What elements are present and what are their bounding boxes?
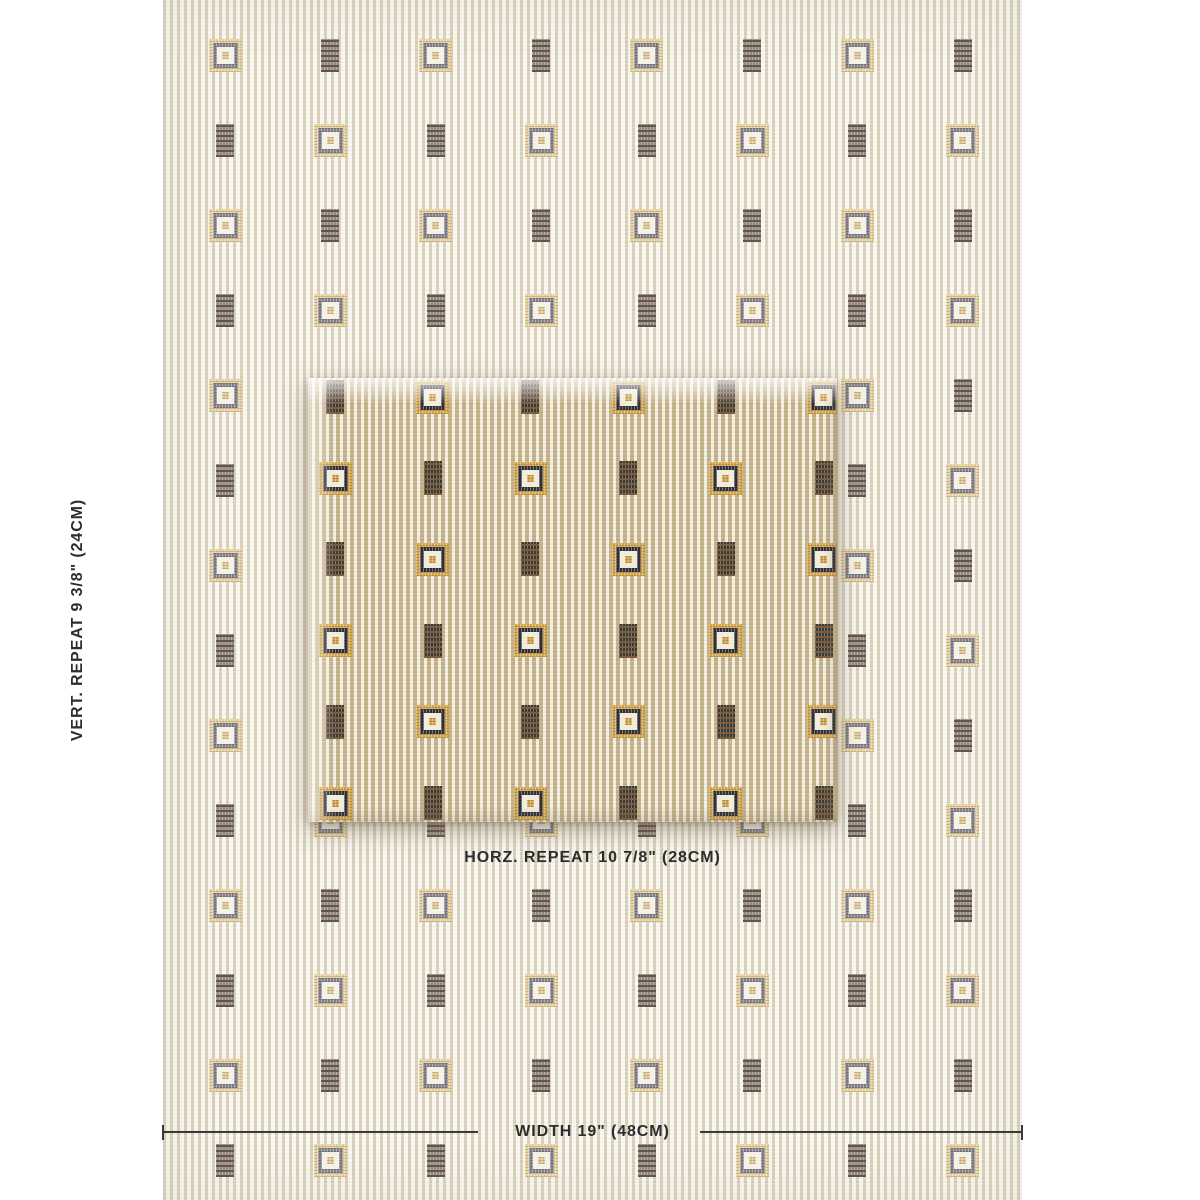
- motif-dark-ring: [323, 791, 348, 816]
- motif-inner: [427, 47, 444, 64]
- motif-center-square: [854, 222, 861, 229]
- motif-dark-ring: [616, 709, 641, 734]
- motif-center-square: [432, 902, 439, 909]
- motif-inner: [849, 727, 866, 744]
- motif-dark-ring: [616, 547, 641, 572]
- fabric-motif-dark: [717, 705, 735, 739]
- motif-dark-ring: [845, 893, 870, 918]
- motif-inner: [327, 632, 344, 649]
- motif-dark-ring: [740, 298, 765, 323]
- fabric-motif-dark: [954, 379, 972, 412]
- motif-dark-ring: [616, 385, 641, 410]
- fabric-motif-dark: [638, 124, 656, 157]
- fabric-motif-framed: [416, 381, 449, 414]
- fabric-motif-dark: [743, 39, 761, 72]
- fabric-motif-framed: [319, 462, 352, 495]
- fabric-motif-framed: [419, 39, 452, 72]
- motif-dark-ring: [713, 466, 738, 491]
- motif-inner: [322, 302, 339, 319]
- motif-center-square: [959, 817, 966, 824]
- fabric-motif-framed: [209, 1059, 242, 1092]
- fabric-motif-framed: [612, 705, 645, 738]
- motif-dark-ring: [529, 128, 554, 153]
- motif-inner: [217, 1067, 234, 1084]
- motif-center-square: [959, 647, 966, 654]
- fabric-motif-dark: [954, 1059, 972, 1092]
- motif-inner: [954, 472, 971, 489]
- motif-inner: [849, 557, 866, 574]
- fabric-motif-dark: [216, 804, 234, 837]
- fabric-motif-dark: [321, 1059, 339, 1092]
- motif-center-square: [643, 902, 650, 909]
- fabric-motif-dark: [954, 39, 972, 72]
- motif-center-square: [749, 987, 756, 994]
- fabric-motif-dark: [326, 380, 344, 414]
- motif-inner: [638, 897, 655, 914]
- motif-dark-ring: [713, 628, 738, 653]
- fabric-motif-framed: [946, 464, 979, 497]
- motif-center-square: [854, 732, 861, 739]
- fabric-motif-framed: [514, 624, 547, 657]
- motif-center-square: [722, 475, 729, 482]
- motif-dark-ring: [420, 709, 445, 734]
- motif-inner: [327, 470, 344, 487]
- fabric-motif-dark: [848, 1144, 866, 1177]
- fabric-motif-framed: [841, 379, 874, 412]
- fabric-motif-dark: [743, 889, 761, 922]
- motif-inner: [620, 713, 637, 730]
- fabric-motif-framed: [209, 549, 242, 582]
- motif-inner: [954, 132, 971, 149]
- motif-inner: [217, 217, 234, 234]
- motif-dark-ring: [634, 1063, 659, 1088]
- fabric-motif-dark: [326, 705, 344, 739]
- fabric-motif-framed: [709, 462, 742, 495]
- vertical-repeat-label: VERT. REPEAT 9 3/8" (24CM): [69, 420, 89, 820]
- motif-dark-ring: [318, 298, 343, 323]
- motif-inner: [954, 812, 971, 829]
- motif-center-square: [854, 902, 861, 909]
- motif-center-square: [327, 987, 334, 994]
- motif-inner: [327, 795, 344, 812]
- motif-dark-ring: [713, 791, 738, 816]
- fabric-motif-framed: [314, 294, 347, 327]
- motif-dark-ring: [213, 723, 238, 748]
- motif-center-square: [527, 475, 534, 482]
- motif-center-square: [429, 718, 436, 725]
- fabric-motif-dark: [848, 464, 866, 497]
- motif-center-square: [222, 732, 229, 739]
- motif-center-square: [749, 137, 756, 144]
- motif-inner: [217, 897, 234, 914]
- motif-dark-ring: [950, 128, 975, 153]
- fabric-motif-framed: [209, 889, 242, 922]
- motif-dark-ring: [845, 43, 870, 68]
- motif-inner: [533, 1152, 550, 1169]
- motif-inner: [638, 47, 655, 64]
- motif-center-square: [959, 1157, 966, 1164]
- motif-dark-ring: [845, 723, 870, 748]
- motif-center-square: [538, 307, 545, 314]
- motif-dark-ring: [213, 213, 238, 238]
- motif-inner: [427, 217, 444, 234]
- fabric-motif-framed: [841, 1059, 874, 1092]
- motif-dark-ring: [950, 468, 975, 493]
- motif-center-square: [527, 637, 534, 644]
- fabric-motif-dark: [427, 1144, 445, 1177]
- fabric-motif-framed: [630, 39, 663, 72]
- motif-inner: [427, 1067, 444, 1084]
- motif-inner: [427, 897, 444, 914]
- motif-center-square: [327, 137, 334, 144]
- motif-center-square: [538, 1157, 545, 1164]
- motif-dark-ring: [634, 213, 659, 238]
- fabric-motif-dark: [848, 804, 866, 837]
- motif-dark-ring: [634, 43, 659, 68]
- fabric-motif-dark: [532, 209, 550, 242]
- motif-dark-ring: [213, 383, 238, 408]
- fabric-motif-dark: [954, 719, 972, 752]
- motif-inner: [522, 470, 539, 487]
- motif-center-square: [625, 556, 632, 563]
- motif-dark-ring: [529, 978, 554, 1003]
- motif-inner: [322, 982, 339, 999]
- motif-dark-ring: [213, 553, 238, 578]
- fabric-motif-dark: [638, 1144, 656, 1177]
- motif-inner: [849, 897, 866, 914]
- motif-inner: [815, 551, 832, 568]
- fabric-motif-dark: [848, 634, 866, 667]
- motif-dark-ring: [213, 1063, 238, 1088]
- fabric-motif-framed: [709, 624, 742, 657]
- fabric-motif-dark: [321, 209, 339, 242]
- motif-center-square: [327, 1157, 334, 1164]
- motif-inner: [217, 727, 234, 744]
- fabric-motif-framed: [630, 209, 663, 242]
- motif-center-square: [820, 394, 827, 401]
- fabric-motif-framed: [209, 379, 242, 412]
- fabric-motif-dark: [521, 705, 539, 739]
- fabric-motif-framed: [841, 209, 874, 242]
- motif-dark-ring: [423, 43, 448, 68]
- motif-dark-ring: [845, 553, 870, 578]
- fabric-motif-framed: [736, 1144, 769, 1177]
- motif-dark-ring: [213, 893, 238, 918]
- motif-center-square: [222, 562, 229, 569]
- motif-dark-ring: [634, 893, 659, 918]
- motif-inner: [717, 795, 734, 812]
- fabric-motif-framed: [946, 124, 979, 157]
- motif-center-square: [959, 987, 966, 994]
- motif-center-square: [820, 556, 827, 563]
- motif-dark-ring: [529, 298, 554, 323]
- motif-dark-ring: [740, 128, 765, 153]
- fabric-motif-dark: [743, 1059, 761, 1092]
- motif-center-square: [749, 1157, 756, 1164]
- motif-inner: [533, 132, 550, 149]
- fabric-motif-framed: [946, 1144, 979, 1177]
- fabric-motif-dark: [216, 124, 234, 157]
- motif-dark-ring: [950, 978, 975, 1003]
- motif-dark-ring: [423, 893, 448, 918]
- motif-dark-ring: [518, 466, 543, 491]
- motif-inner: [744, 1152, 761, 1169]
- fabric-motif-framed: [630, 889, 663, 922]
- motif-center-square: [432, 1072, 439, 1079]
- horizontal-repeat-label: HORZ. REPEAT 10 7/8" (28CM): [163, 849, 1022, 867]
- motif-inner: [954, 302, 971, 319]
- motif-center-square: [643, 52, 650, 59]
- fabric-motif-dark: [326, 542, 344, 576]
- motif-center-square: [332, 800, 339, 807]
- motif-dark-ring: [740, 978, 765, 1003]
- fabric-motif-framed: [419, 209, 452, 242]
- motif-dark-ring: [420, 547, 445, 572]
- motif-center-square: [222, 902, 229, 909]
- fabric-motif-framed: [841, 39, 874, 72]
- fabric-motif-dark: [638, 294, 656, 327]
- motif-dark-ring: [950, 638, 975, 663]
- fabric-motif-framed: [630, 1059, 663, 1092]
- fabric-motif-framed: [525, 974, 558, 1007]
- fabric-motif-dark: [532, 889, 550, 922]
- fabric-motif-framed: [314, 124, 347, 157]
- fabric-motif-framed: [419, 889, 452, 922]
- motif-inner: [954, 642, 971, 659]
- motif-inner: [744, 302, 761, 319]
- motif-center-square: [527, 800, 534, 807]
- fabric-motif-dark: [532, 1059, 550, 1092]
- motif-center-square: [625, 394, 632, 401]
- fabric-motif-framed: [209, 209, 242, 242]
- motif-inner: [954, 1152, 971, 1169]
- motif-inner: [638, 217, 655, 234]
- fabric-motif-framed: [314, 974, 347, 1007]
- motif-center-square: [429, 556, 436, 563]
- fabric-motif-framed: [514, 787, 547, 820]
- fabric-motif-dark: [848, 974, 866, 1007]
- fabric-motif-dark: [954, 889, 972, 922]
- motif-inner: [322, 132, 339, 149]
- motif-dark-ring: [950, 1148, 975, 1173]
- motif-center-square: [538, 987, 545, 994]
- motif-inner: [217, 557, 234, 574]
- fabric-motif-framed: [209, 719, 242, 752]
- fabric-motif-dark: [532, 39, 550, 72]
- fabric-motif-dark: [619, 461, 637, 495]
- motif-dark-ring: [811, 547, 836, 572]
- motif-center-square: [432, 222, 439, 229]
- motif-center-square: [722, 800, 729, 807]
- fabric-motif-dark: [321, 39, 339, 72]
- motif-center-square: [222, 1072, 229, 1079]
- fabric-motif-framed: [209, 39, 242, 72]
- motif-inner: [620, 389, 637, 406]
- motif-dark-ring: [423, 213, 448, 238]
- fabric-motif-dark: [216, 974, 234, 1007]
- motif-center-square: [854, 562, 861, 569]
- motif-inner: [849, 47, 866, 64]
- motif-center-square: [854, 52, 861, 59]
- motif-dark-ring: [529, 1148, 554, 1173]
- motif-center-square: [538, 137, 545, 144]
- fabric-motif-framed: [736, 974, 769, 1007]
- motif-center-square: [222, 52, 229, 59]
- fabric-motif-dark: [815, 624, 833, 658]
- motif-center-square: [432, 52, 439, 59]
- motif-center-square: [429, 394, 436, 401]
- motif-center-square: [625, 718, 632, 725]
- fabric-motif-dark: [321, 889, 339, 922]
- motif-center-square: [222, 392, 229, 399]
- motif-dark-ring: [950, 808, 975, 833]
- motif-center-square: [854, 1072, 861, 1079]
- width-label: WIDTH 19" (48CM): [163, 1123, 1022, 1141]
- motif-dark-ring: [845, 213, 870, 238]
- fabric-motif-dark: [521, 380, 539, 414]
- fabric-motif-dark: [848, 124, 866, 157]
- fabric-motif-framed: [736, 294, 769, 327]
- fabric-motif-dark: [427, 124, 445, 157]
- fabric-motif-dark: [717, 380, 735, 414]
- motif-dark-ring: [811, 709, 836, 734]
- fabric-motif-dark: [954, 549, 972, 582]
- motif-inner: [217, 387, 234, 404]
- motif-inner: [815, 389, 832, 406]
- fabric-motif-dark: [954, 209, 972, 242]
- fabric-motif-framed: [807, 381, 837, 414]
- fabric-motif-framed: [525, 124, 558, 157]
- motif-center-square: [222, 222, 229, 229]
- motif-dark-ring: [213, 43, 238, 68]
- motif-center-square: [332, 637, 339, 644]
- motif-dark-ring: [740, 1148, 765, 1173]
- fabric-motif-dark: [424, 786, 442, 820]
- fabric-motif-dark: [717, 542, 735, 576]
- motif-center-square: [854, 392, 861, 399]
- motif-center-square: [643, 1072, 650, 1079]
- fabric-motif-dark: [216, 634, 234, 667]
- motif-inner: [954, 982, 971, 999]
- motif-dark-ring: [518, 791, 543, 816]
- motif-center-square: [820, 718, 827, 725]
- fabric-motif-framed: [807, 543, 837, 576]
- fabric-motif-dark: [619, 786, 637, 820]
- motif-inner: [533, 982, 550, 999]
- fabric-motif-framed: [946, 804, 979, 837]
- fabric-motif-framed: [841, 549, 874, 582]
- fabric-motif-framed: [416, 543, 449, 576]
- motif-inner: [522, 795, 539, 812]
- motif-inner: [620, 551, 637, 568]
- fabric-motif-framed: [514, 462, 547, 495]
- fabric-motif-framed: [709, 787, 742, 820]
- motif-dark-ring: [518, 628, 543, 653]
- fabric-motif-framed: [841, 719, 874, 752]
- motif-dark-ring: [950, 298, 975, 323]
- motif-inner: [533, 302, 550, 319]
- fabric-motif-framed: [946, 634, 979, 667]
- fabric-motif-framed: [416, 705, 449, 738]
- motif-dark-ring: [318, 978, 343, 1003]
- motif-center-square: [722, 637, 729, 644]
- fabric-motif-framed: [736, 124, 769, 157]
- fabric-motif-framed: [319, 624, 352, 657]
- motif-inner: [815, 713, 832, 730]
- motif-inner: [522, 632, 539, 649]
- fabric-motif-dark: [427, 974, 445, 1007]
- motif-dark-ring: [811, 385, 836, 410]
- motif-center-square: [959, 477, 966, 484]
- fabric-motif-dark: [521, 542, 539, 576]
- motif-center-square: [959, 137, 966, 144]
- fabric-motif-framed: [612, 543, 645, 576]
- motif-dark-ring: [323, 466, 348, 491]
- fabric-motif-dark: [424, 461, 442, 495]
- fabric-motif-framed: [807, 705, 837, 738]
- motif-inner: [744, 982, 761, 999]
- fabric-motif-framed: [841, 889, 874, 922]
- motif-dark-ring: [845, 383, 870, 408]
- motif-dark-ring: [423, 1063, 448, 1088]
- fabric-motif-framed: [314, 1144, 347, 1177]
- motif-inner: [849, 387, 866, 404]
- fabric-motif-framed: [319, 787, 352, 820]
- motif-inner: [849, 217, 866, 234]
- motif-center-square: [959, 307, 966, 314]
- fabric-motif-dark: [619, 624, 637, 658]
- fabric-motif-framed: [525, 294, 558, 327]
- fabric-motif-framed: [946, 974, 979, 1007]
- fabric-motif-framed: [946, 294, 979, 327]
- fabric-motif-dark: [743, 209, 761, 242]
- fabric-motif-dark: [216, 1144, 234, 1177]
- fabric-motif-dark: [216, 464, 234, 497]
- motif-inner: [217, 47, 234, 64]
- fabric-motif-framed: [612, 381, 645, 414]
- product-image-canvas: VERT. REPEAT 9 3/8" (24CM) HORZ. REPEAT …: [0, 0, 1200, 1200]
- motif-dark-ring: [318, 128, 343, 153]
- fabric-motif-framed: [419, 1059, 452, 1092]
- motif-inner: [322, 1152, 339, 1169]
- motif-center-square: [749, 307, 756, 314]
- fabric-motif-dark: [216, 294, 234, 327]
- motif-center-square: [332, 475, 339, 482]
- fabric-motif-dark: [815, 461, 833, 495]
- fabric-motif-dark: [848, 294, 866, 327]
- fabric-motif-dark: [815, 786, 833, 820]
- fabric-motif-dark: [424, 624, 442, 658]
- motif-center-square: [327, 307, 334, 314]
- motif-center-square: [643, 222, 650, 229]
- fabric-swatch-overlay: [308, 378, 837, 822]
- fabric-motif-dark: [427, 294, 445, 327]
- motif-inner: [424, 551, 441, 568]
- motif-dark-ring: [845, 1063, 870, 1088]
- motif-inner: [717, 470, 734, 487]
- motif-dark-ring: [323, 628, 348, 653]
- motif-inner: [744, 132, 761, 149]
- fabric-motif-dark: [638, 974, 656, 1007]
- motif-dark-ring: [420, 385, 445, 410]
- motif-inner: [717, 632, 734, 649]
- motif-dark-ring: [318, 1148, 343, 1173]
- motif-inner: [849, 1067, 866, 1084]
- motif-inner: [638, 1067, 655, 1084]
- fabric-motif-framed: [525, 1144, 558, 1177]
- motif-inner: [424, 389, 441, 406]
- motif-inner: [424, 713, 441, 730]
